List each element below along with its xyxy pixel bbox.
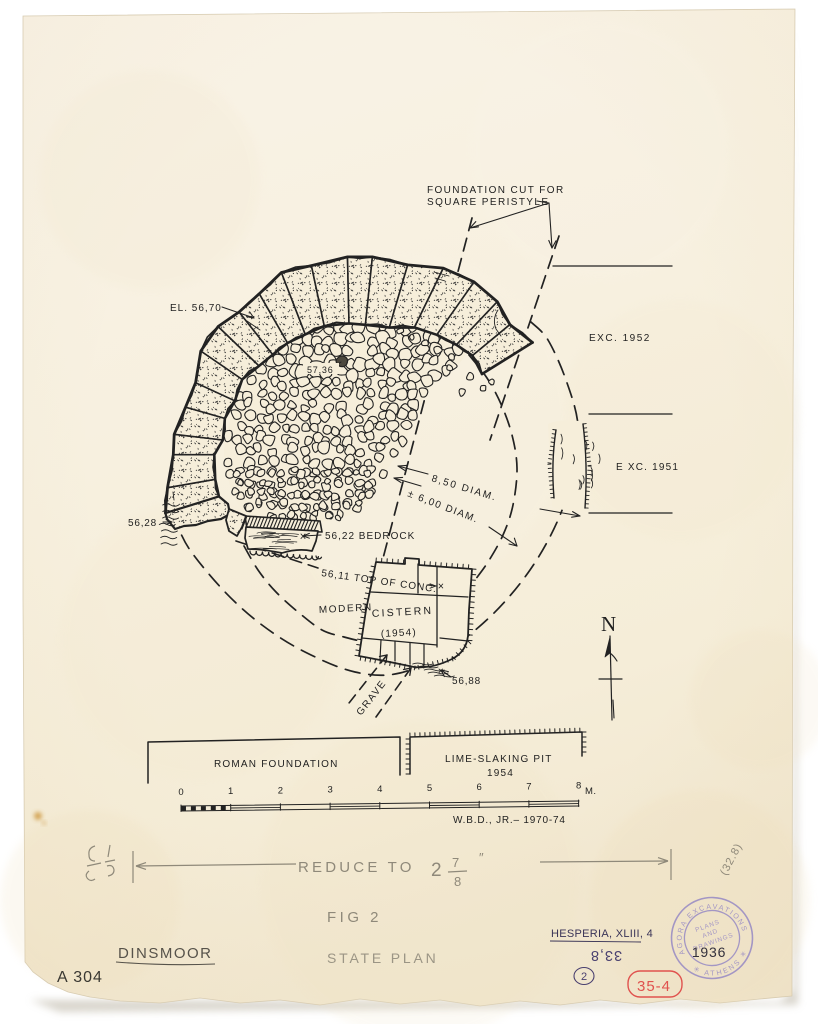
svg-text:56,28: 56,28: [128, 518, 157, 529]
svg-text:56,88: 56,88: [452, 676, 481, 687]
svg-text:7: 7: [452, 855, 459, 870]
svg-text:4: 4: [377, 784, 382, 795]
svg-text:0: 0: [178, 787, 183, 798]
svg-text:2: 2: [278, 785, 283, 796]
svg-text:5: 5: [427, 783, 432, 794]
svg-text:56,22 BEDROCK: 56,22 BEDROCK: [325, 531, 415, 542]
svg-text:DINSMOOR: DINSMOOR: [118, 945, 213, 962]
svg-text:2: 2: [431, 860, 442, 881]
svg-text:(1954): (1954): [381, 627, 418, 640]
svg-text:W.B.D., JR.– 1970-74: W.B.D., JR.– 1970-74: [453, 815, 566, 826]
svg-text:8: 8: [454, 874, 461, 889]
svg-text:A 304: A 304: [57, 969, 103, 986]
svg-text:35-4: 35-4: [637, 978, 671, 995]
svg-text:LIME-SLAKING PIT: LIME-SLAKING PIT: [445, 754, 553, 765]
svg-text:M.: M.: [585, 786, 597, 797]
svg-text:1: 1: [228, 786, 233, 797]
svg-text:6: 6: [477, 782, 482, 793]
svg-text:1954: 1954: [487, 768, 514, 779]
svg-text:REDUCE TO: REDUCE TO: [298, 859, 415, 876]
svg-text:33,8: 33,8: [590, 947, 622, 963]
svg-text:EL. 56,70: EL. 56,70: [170, 303, 222, 314]
svg-text:EXC. 1952: EXC. 1952: [589, 333, 651, 344]
svg-text:HESPERIA, XLIII, 4: HESPERIA, XLIII, 4: [551, 928, 653, 940]
svg-text:7: 7: [526, 781, 531, 792]
svg-text:″: ″: [479, 850, 484, 865]
svg-text:E XC. 1951: E XC. 1951: [616, 462, 679, 473]
svg-text:8: 8: [576, 781, 581, 792]
svg-text:57,36: 57,36: [307, 365, 334, 375]
svg-text:2: 2: [581, 971, 587, 983]
svg-text:STATE PLAN: STATE PLAN: [327, 950, 439, 966]
svg-text:ROMAN FOUNDATION: ROMAN FOUNDATION: [214, 759, 339, 770]
svg-text:FOUNDATION CUT FOR: FOUNDATION CUT FOR: [427, 185, 565, 196]
svg-text:N: N: [601, 612, 616, 636]
svg-text:3: 3: [327, 785, 332, 796]
svg-text:FIG 2: FIG 2: [327, 909, 382, 926]
svg-text:1936: 1936: [692, 944, 726, 960]
svg-text:SQUARE PERISTYLE: SQUARE PERISTYLE: [427, 197, 549, 208]
